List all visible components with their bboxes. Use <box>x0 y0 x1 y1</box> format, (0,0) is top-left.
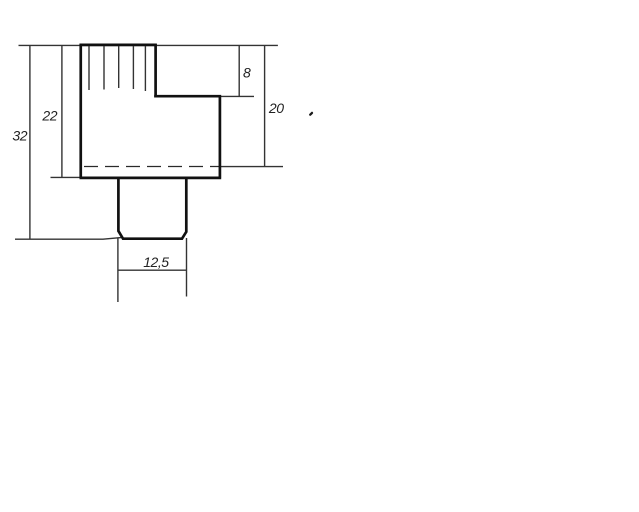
svg-text:32: 32 <box>12 127 27 143</box>
svg-text:22: 22 <box>41 108 57 124</box>
svg-text:20: 20 <box>268 100 284 116</box>
svg-text:8: 8 <box>243 64 251 80</box>
svg-text:12,5: 12,5 <box>143 254 169 270</box>
